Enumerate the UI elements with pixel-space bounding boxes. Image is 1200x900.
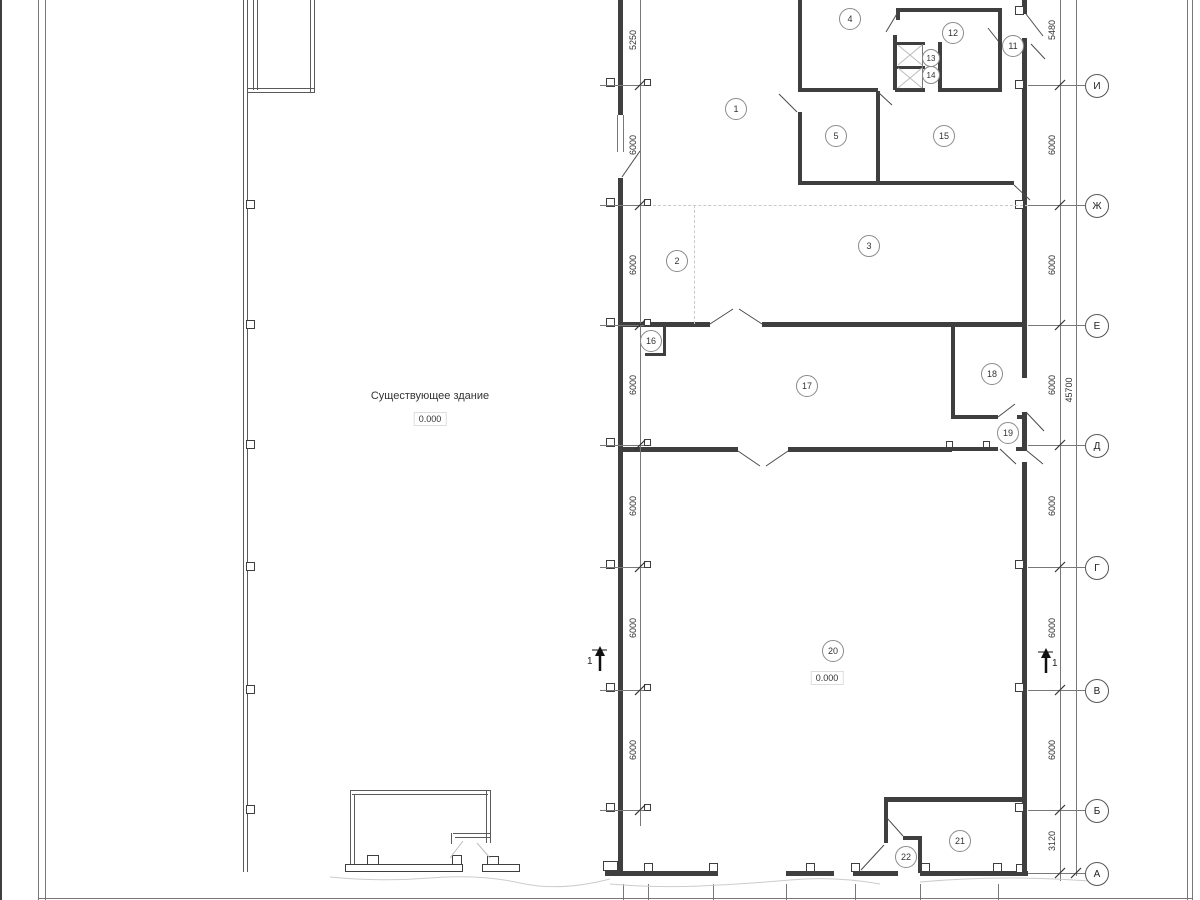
dimension-label: 6000	[1047, 740, 1057, 760]
witness-line	[713, 884, 714, 900]
shaft-edge	[922, 44, 923, 88]
wall	[896, 12, 900, 20]
room-number-marker: 20	[822, 640, 844, 662]
column-marker	[246, 805, 255, 814]
sheet-edge-line	[0, 0, 2, 900]
wall	[951, 415, 998, 419]
column-marker	[921, 863, 930, 872]
sheet-bottom-line	[38, 898, 1192, 899]
dimension-label: 5250	[628, 30, 638, 50]
section-number: 1	[1052, 658, 1058, 669]
column-marker	[1015, 6, 1024, 15]
room-number-marker: 12	[942, 22, 964, 44]
column-marker	[946, 441, 953, 448]
witness-line	[998, 884, 999, 900]
witness-line	[786, 884, 787, 900]
room-number-marker: 17	[796, 375, 818, 397]
wall	[998, 12, 1002, 90]
wall	[1017, 415, 1027, 419]
wall	[618, 178, 623, 872]
wall	[490, 790, 491, 843]
room-number-marker: 14	[922, 66, 940, 84]
column-marker	[644, 199, 651, 206]
wall	[798, 181, 1014, 185]
room-number-marker: 16	[640, 330, 662, 352]
window-line	[623, 115, 624, 152]
column-marker	[246, 320, 255, 329]
wall	[618, 0, 623, 115]
wall	[884, 797, 888, 843]
column-marker	[1015, 683, 1024, 692]
wall	[938, 88, 1002, 92]
wall	[247, 88, 315, 89]
room-number-marker: 5	[825, 125, 847, 147]
overhead-dashed-line	[648, 205, 1028, 206]
grid-bubble: Е	[1085, 314, 1109, 338]
wall	[453, 833, 490, 834]
dimension-label: 6000	[1047, 255, 1057, 275]
room-number-marker: 13	[922, 49, 940, 67]
wall	[253, 0, 254, 90]
porch-pedestal	[487, 856, 499, 865]
room-number-marker: 19	[997, 422, 1019, 444]
column-marker	[983, 441, 990, 448]
dimension-label: 3120	[1047, 831, 1057, 851]
column-marker	[644, 439, 651, 446]
level-mark: 0.000	[811, 671, 844, 685]
wall	[257, 0, 258, 90]
wall	[876, 91, 880, 183]
window-line	[617, 115, 618, 152]
wall	[247, 92, 315, 93]
dimension-label: 6000	[628, 135, 638, 155]
wall	[352, 794, 488, 795]
dimension-line	[1076, 0, 1077, 876]
section-number: 1	[587, 656, 593, 667]
wall	[486, 790, 487, 843]
room-number-marker: 21	[949, 830, 971, 852]
dimension-label: 6000	[628, 255, 638, 275]
witness-line	[623, 884, 624, 900]
wall	[886, 797, 1027, 802]
dimension-label: 6000	[628, 740, 638, 760]
wall	[788, 447, 952, 452]
grid-bubble: Б	[1085, 799, 1109, 823]
wall	[645, 353, 666, 356]
porch-pedestal	[367, 855, 379, 865]
dimension-total-label: 45700	[1064, 377, 1074, 402]
dimension-label: 5480	[1047, 20, 1057, 40]
column-marker	[644, 863, 653, 872]
section-mark-right	[1038, 648, 1053, 673]
dimension-label: 6000	[628, 496, 638, 516]
dimension-label: 6000	[1047, 135, 1057, 155]
grid-bubble: Д	[1085, 434, 1109, 458]
room-number-marker: 22	[895, 846, 917, 868]
column-marker	[806, 863, 815, 872]
wall	[798, 0, 802, 88]
column-marker	[246, 440, 255, 449]
room-number-marker: 15	[933, 125, 955, 147]
column-marker	[709, 863, 718, 872]
wall	[1022, 38, 1027, 205]
dimension-line	[640, 0, 641, 826]
sheet-border-line	[1187, 0, 1188, 900]
grid-bubble: И	[1085, 74, 1109, 98]
column-marker	[1015, 560, 1024, 569]
porch-base	[482, 864, 520, 872]
wall	[451, 833, 452, 844]
sheet-border-line	[1192, 0, 1193, 900]
grid-bubble: В	[1085, 679, 1109, 703]
wall	[798, 88, 878, 92]
wall	[762, 322, 1025, 327]
grid-bubble: Г	[1085, 556, 1109, 580]
wall	[895, 88, 925, 92]
wall	[605, 871, 718, 876]
wall	[350, 790, 490, 791]
column-marker	[1015, 80, 1024, 89]
wall	[920, 871, 1028, 876]
wall	[918, 840, 922, 873]
overhead-dashed-line	[694, 205, 695, 324]
ground-break-line	[330, 877, 1100, 887]
wall	[951, 327, 955, 417]
wall	[350, 790, 351, 870]
column-marker	[246, 685, 255, 694]
room-number-marker: 4	[839, 8, 861, 30]
existing-building-label: Существующее здание	[371, 390, 489, 402]
room-number-marker: 11	[1002, 35, 1024, 57]
witness-line	[648, 884, 649, 900]
dimension-label: 6000	[628, 618, 638, 638]
room-number-marker: 1	[725, 98, 747, 120]
column-marker	[644, 804, 651, 811]
column-marker	[644, 684, 651, 691]
wall	[1022, 205, 1027, 378]
room-number-marker: 18	[981, 363, 1003, 385]
wall	[1016, 447, 1027, 451]
dimension-label: 6000	[1047, 496, 1057, 516]
witness-line	[855, 884, 856, 900]
column-marker	[993, 863, 1002, 872]
wall	[247, 0, 248, 872]
column-marker	[246, 562, 255, 571]
dimension-line	[1060, 0, 1061, 881]
wall	[455, 837, 490, 838]
floor-plan-sheet: 1 1 И Ж Е Д Г В Б А 5250 6000 6000 6000 …	[0, 0, 1200, 900]
wall	[314, 0, 315, 92]
wall	[663, 327, 666, 355]
sheet-border-line	[38, 0, 39, 900]
room-number-marker: 3	[858, 235, 880, 257]
wall	[798, 112, 802, 183]
wall	[896, 8, 1002, 12]
level-mark: 0.000	[414, 412, 447, 426]
porch-base	[345, 864, 463, 872]
wall	[354, 794, 355, 868]
grid-bubble: А	[1085, 862, 1109, 886]
wall	[310, 0, 311, 92]
sheet-border-line	[45, 0, 46, 900]
section-mark-left	[592, 646, 607, 671]
wall	[243, 0, 244, 872]
witness-line	[920, 884, 921, 900]
column-marker	[246, 200, 255, 209]
dimension-label: 6000	[628, 375, 638, 395]
column-marker	[644, 319, 651, 326]
column-marker	[851, 863, 860, 872]
wall	[895, 42, 925, 45]
room-number-marker: 2	[666, 250, 688, 272]
entry-step	[603, 861, 618, 871]
column-marker	[644, 79, 651, 86]
porch-pedestal	[452, 855, 462, 865]
dimension-label: 6000	[1047, 375, 1057, 395]
wall	[895, 66, 925, 69]
wall	[938, 42, 942, 92]
wall	[952, 447, 998, 451]
dimension-label: 6000	[1047, 618, 1057, 638]
grid-bubble: Ж	[1085, 194, 1109, 218]
column-marker	[1015, 803, 1024, 812]
column-marker	[644, 561, 651, 568]
